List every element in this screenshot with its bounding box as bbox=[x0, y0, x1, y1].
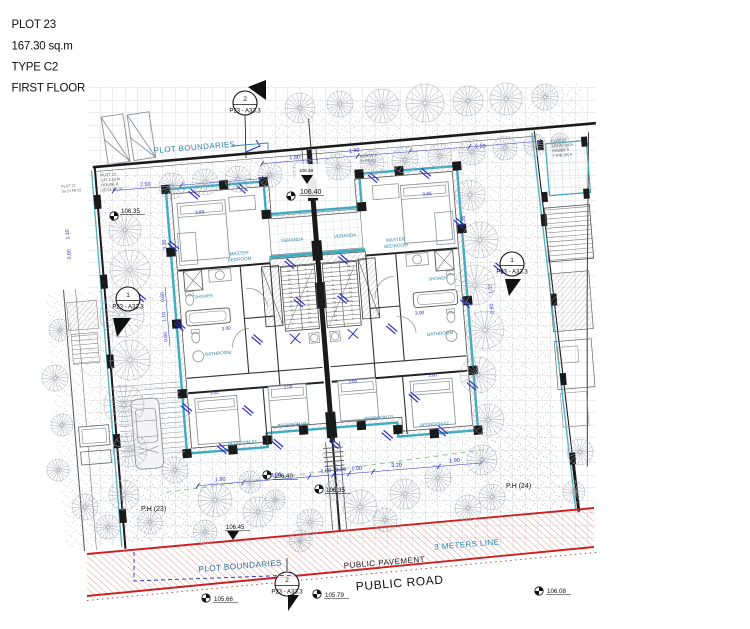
svg-text:3.00: 3.00 bbox=[348, 379, 357, 385]
svg-text:1.10: 1.10 bbox=[161, 312, 168, 322]
svg-text:1.90: 1.90 bbox=[449, 458, 460, 465]
svg-text:106.48: 106.48 bbox=[299, 168, 313, 173]
svg-text:3.85: 3.85 bbox=[422, 191, 432, 198]
svg-text:P.H (23): P.H (23) bbox=[141, 506, 166, 513]
svg-text:P23 - A33.3: P23 - A33.3 bbox=[271, 590, 303, 596]
svg-text:2: 2 bbox=[285, 577, 289, 584]
svg-text:3.35: 3.35 bbox=[461, 215, 468, 226]
svg-text:16: 16 bbox=[308, 320, 312, 324]
svg-text:1.90: 1.90 bbox=[215, 477, 226, 484]
svg-text:P.H (24): P.H (24) bbox=[506, 483, 531, 490]
svg-text:105.66: 105.66 bbox=[214, 596, 233, 603]
svg-text:105.79: 105.79 bbox=[325, 592, 344, 599]
svg-text:P23 - A33.3: P23 - A33.3 bbox=[112, 305, 144, 311]
svg-text:TYPE C2: TYPE C2 bbox=[12, 62, 59, 74]
svg-text:1.80: 1.80 bbox=[289, 155, 300, 162]
svg-text:0.60: 0.60 bbox=[66, 249, 73, 260]
svg-text:106.35: 106.35 bbox=[326, 487, 345, 494]
svg-text:3.00: 3.00 bbox=[221, 326, 231, 333]
svg-text:3.85: 3.85 bbox=[195, 209, 205, 216]
svg-text:3.00: 3.00 bbox=[415, 310, 425, 317]
svg-text:1.00: 1.00 bbox=[351, 466, 362, 473]
svg-text:106.40: 106.40 bbox=[274, 473, 293, 480]
svg-text:3.20: 3.20 bbox=[391, 462, 402, 469]
svg-text:2: 2 bbox=[243, 96, 247, 103]
svg-text:2.50: 2.50 bbox=[140, 182, 151, 189]
svg-text:0.60: 0.60 bbox=[160, 292, 167, 302]
svg-text:PLOT 23: PLOT 23 bbox=[12, 19, 56, 31]
svg-text:FIRST FLOOR: FIRST FLOOR bbox=[12, 83, 86, 95]
svg-text:106.08: 106.08 bbox=[547, 588, 566, 595]
svg-text:1.10: 1.10 bbox=[65, 229, 72, 240]
svg-text:3.00: 3.00 bbox=[284, 384, 293, 390]
svg-text:1: 1 bbox=[510, 257, 514, 264]
svg-text:106.45: 106.45 bbox=[226, 525, 245, 531]
svg-text:P23 - A33.3: P23 - A33.3 bbox=[496, 270, 528, 276]
svg-text:1.90: 1.90 bbox=[349, 148, 360, 155]
svg-text:0.25: 0.25 bbox=[335, 467, 346, 474]
svg-text:3.00: 3.00 bbox=[210, 390, 219, 396]
svg-text:1: 1 bbox=[126, 292, 130, 299]
svg-text:3.00: 3.00 bbox=[428, 372, 437, 378]
svg-text:106.35: 106.35 bbox=[121, 208, 140, 215]
svg-text:0.60: 0.60 bbox=[163, 332, 170, 342]
svg-text:1.00: 1.00 bbox=[320, 468, 331, 475]
svg-text:167.30 sq.m: 167.30 sq.m bbox=[12, 41, 73, 53]
svg-text:3.35: 3.35 bbox=[162, 239, 169, 250]
svg-text:P23 - A33.3: P23 - A33.3 bbox=[229, 109, 261, 115]
svg-text:1.10: 1.10 bbox=[487, 283, 494, 294]
svg-text:16: 16 bbox=[334, 318, 338, 322]
svg-text:106.40: 106.40 bbox=[300, 189, 322, 196]
